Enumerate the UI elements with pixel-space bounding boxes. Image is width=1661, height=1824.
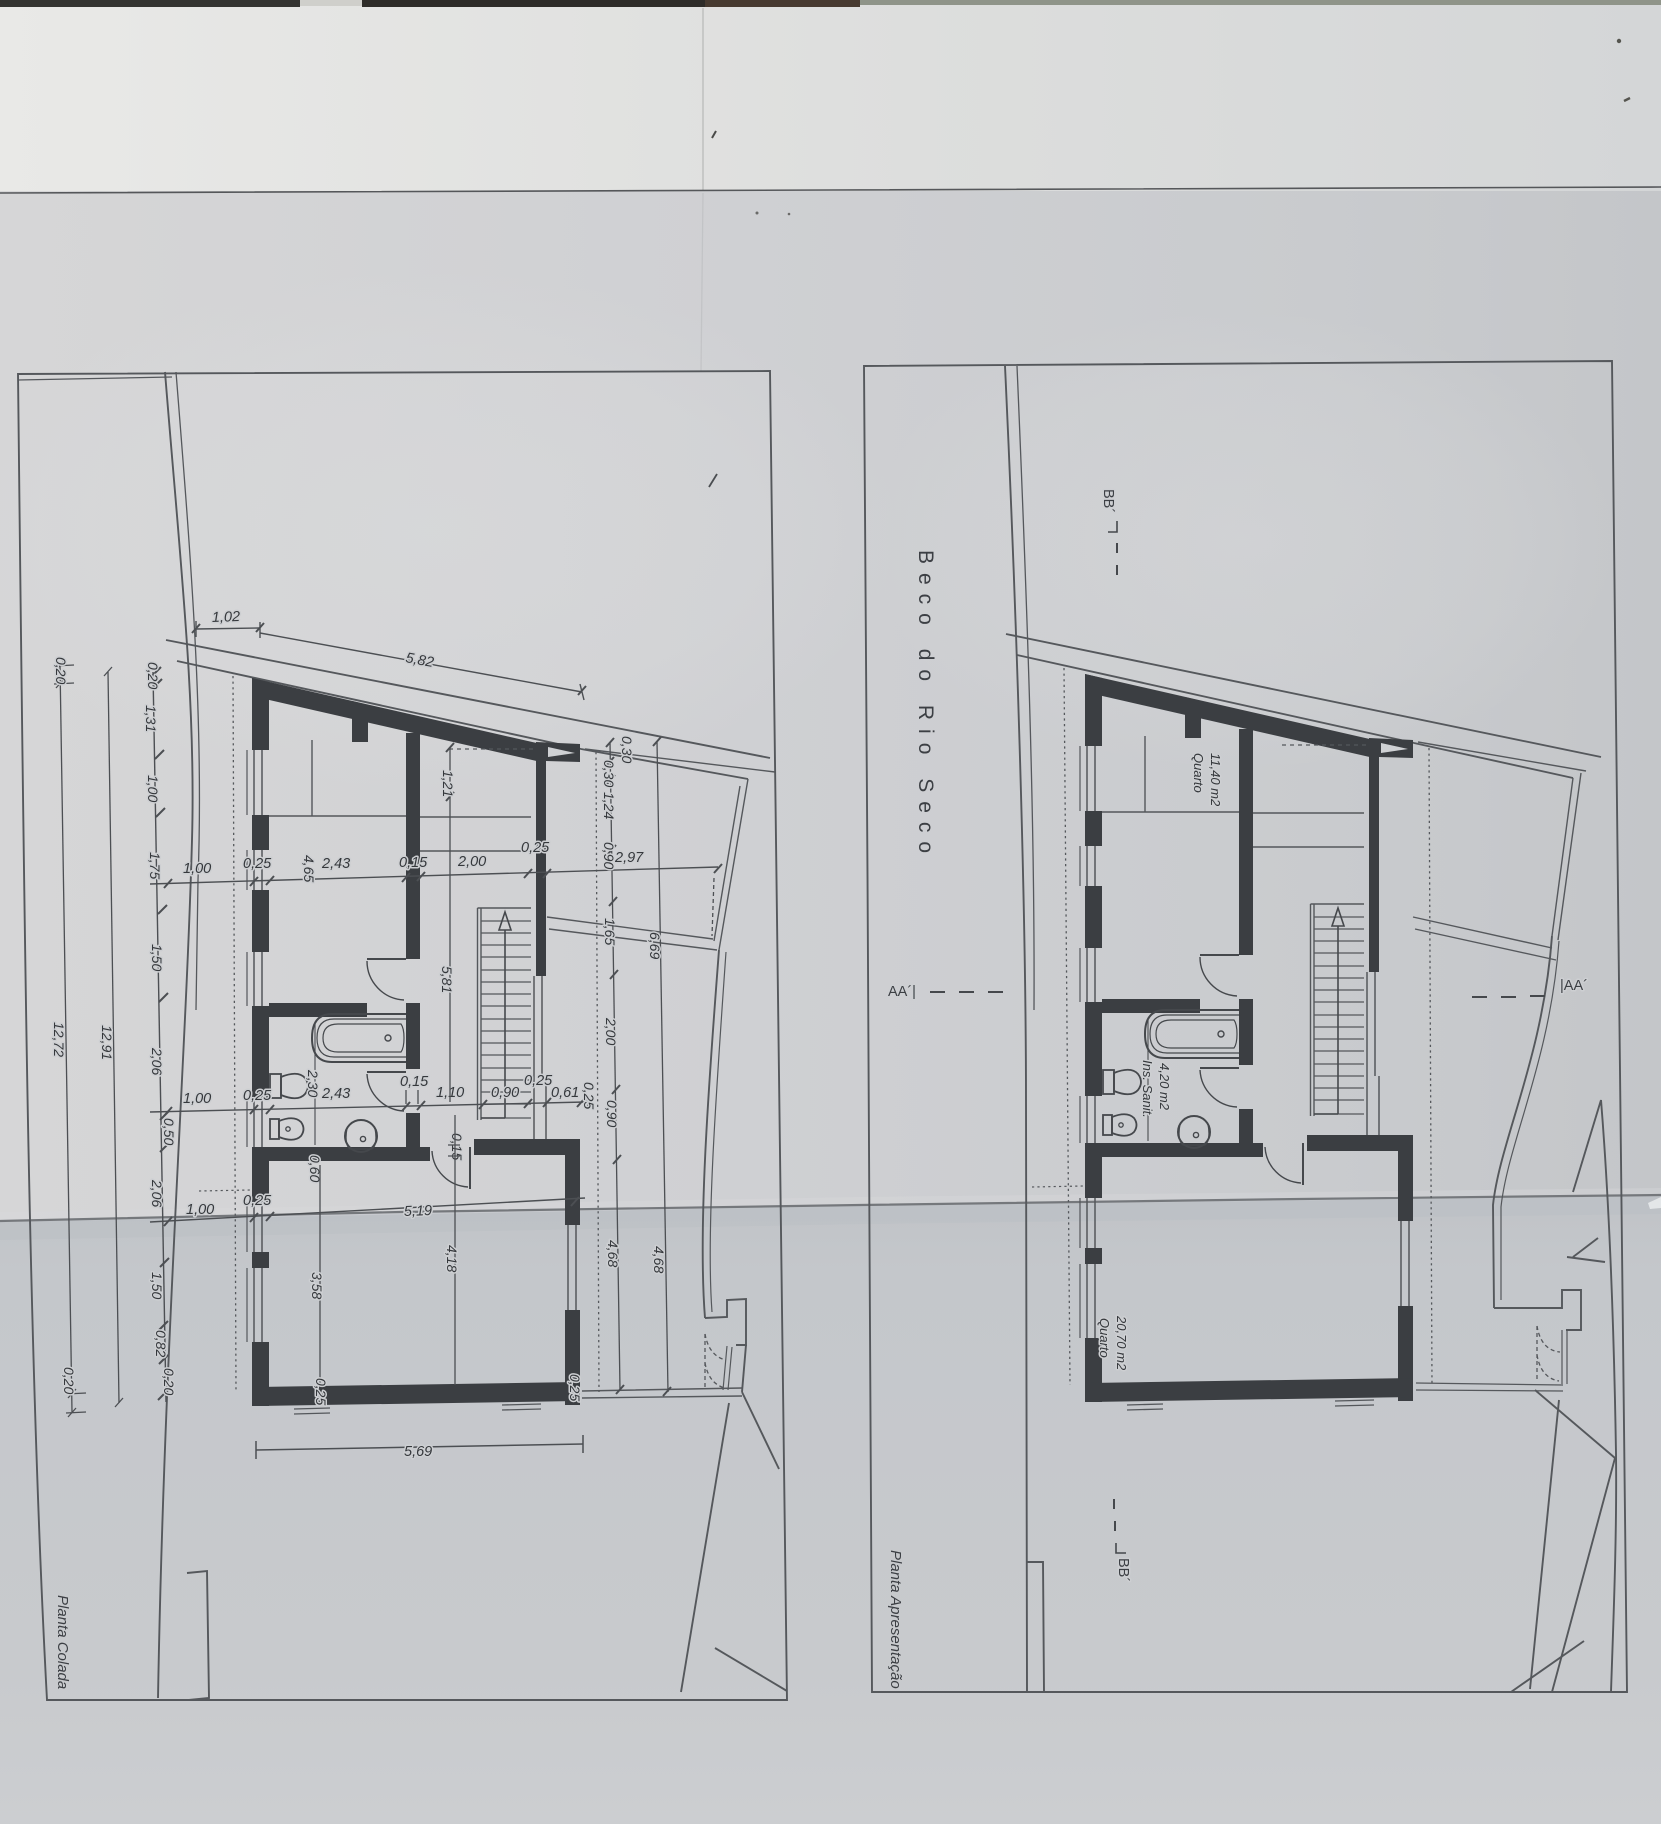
svg-text:1,75: 1,75	[147, 852, 163, 879]
svg-text:0,30: 0,30	[601, 760, 617, 787]
svg-text:1,31: 1,31	[143, 705, 159, 732]
svg-text:0,25: 0,25	[243, 1088, 272, 1104]
svg-text:Quarto: Quarto	[1097, 1318, 1112, 1358]
svg-text:1,02: 1,02	[212, 609, 241, 626]
svg-text:1,00: 1,00	[186, 1202, 214, 1218]
svg-text:20,70 m2: 20,70 m2	[1114, 1315, 1129, 1371]
svg-text:0,25: 0,25	[567, 1374, 583, 1401]
svg-text:0,25: 0,25	[524, 1073, 553, 1089]
svg-text:1,00: 1,00	[145, 775, 161, 802]
svg-text:0,20: 0,20	[145, 662, 161, 689]
svg-text:Ins. Sanit.: Ins. Sanit.	[1140, 1060, 1155, 1118]
svg-text:Quarto: Quarto	[1191, 753, 1206, 793]
svg-text:0,20: 0,20	[53, 657, 69, 684]
svg-text:AA´|: AA´|	[888, 984, 916, 1000]
svg-text:0,90: 0,90	[604, 1100, 620, 1127]
svg-text:1,00: 1,00	[183, 1091, 211, 1107]
svg-text:1,00: 1,00	[183, 861, 211, 877]
svg-text:1,21: 1,21	[440, 770, 456, 797]
svg-text:4,20 m2: 4,20 m2	[1157, 1063, 1172, 1111]
svg-text:1,50: 1,50	[149, 944, 165, 971]
svg-text:5,19: 5,19	[404, 1203, 433, 1220]
svg-text:0,20: 0,20	[161, 1368, 177, 1395]
svg-text:1,65: 1,65	[602, 918, 618, 945]
svg-text:BB´: BB´	[1115, 1558, 1131, 1582]
svg-text:12,72: 12,72	[51, 1022, 67, 1057]
svg-text:0,25: 0,25	[243, 856, 272, 872]
svg-text:0,82: 0,82	[153, 1330, 169, 1357]
svg-text:4,68: 4,68	[651, 1246, 667, 1273]
svg-text:Beco do Rio Seco: Beco do Rio Seco	[914, 550, 937, 862]
svg-text:2,43: 2,43	[321, 856, 350, 872]
svg-text:0,61: 0,61	[551, 1085, 579, 1101]
svg-text:Planta Colada: Planta Colada	[54, 1595, 71, 1689]
svg-text:2,43: 2,43	[321, 1086, 350, 1102]
svg-text:6,69: 6,69	[647, 932, 663, 959]
svg-text:0,25: 0,25	[313, 1378, 329, 1405]
svg-text:5,81: 5,81	[439, 966, 455, 993]
svg-text:2,00: 2,00	[603, 1017, 619, 1045]
svg-text:0,25: 0,25	[243, 1193, 272, 1209]
svg-text:2,06: 2,06	[149, 1047, 165, 1075]
svg-text:1,50: 1,50	[149, 1272, 165, 1299]
svg-text:5,69: 5,69	[404, 1444, 432, 1460]
svg-text:2,06: 2,06	[149, 1179, 165, 1207]
svg-text:|AA´: |AA´	[1560, 978, 1588, 994]
svg-text:3,58: 3,58	[309, 1272, 325, 1299]
svg-text:2,97: 2,97	[614, 850, 644, 866]
svg-text:0,15: 0,15	[399, 855, 428, 871]
svg-text:0,20: 0,20	[61, 1367, 77, 1394]
svg-text:2,00: 2,00	[457, 854, 486, 870]
svg-text:0,30: 0,30	[619, 736, 635, 763]
svg-text:2,30: 2,30	[305, 1069, 321, 1097]
svg-text:0,90: 0,90	[491, 1085, 519, 1101]
svg-text:4,65: 4,65	[301, 855, 317, 882]
svg-text:4,18: 4,18	[444, 1245, 460, 1272]
svg-text:BB´: BB´	[1100, 489, 1116, 513]
svg-text:4,68: 4,68	[605, 1240, 621, 1267]
svg-text:0,25: 0,25	[581, 1082, 597, 1109]
svg-text:0,90: 0,90	[601, 842, 617, 869]
svg-text:1,24: 1,24	[601, 792, 617, 819]
svg-text:0,25: 0,25	[521, 840, 550, 856]
svg-text:11,40 m2: 11,40 m2	[1208, 753, 1223, 807]
svg-text:Planta Apresentação: Planta Apresentação	[887, 1550, 904, 1689]
svg-text:12,91: 12,91	[99, 1025, 115, 1060]
svg-text:0,50: 0,50	[161, 1118, 177, 1145]
svg-text:0,15: 0,15	[400, 1074, 429, 1090]
